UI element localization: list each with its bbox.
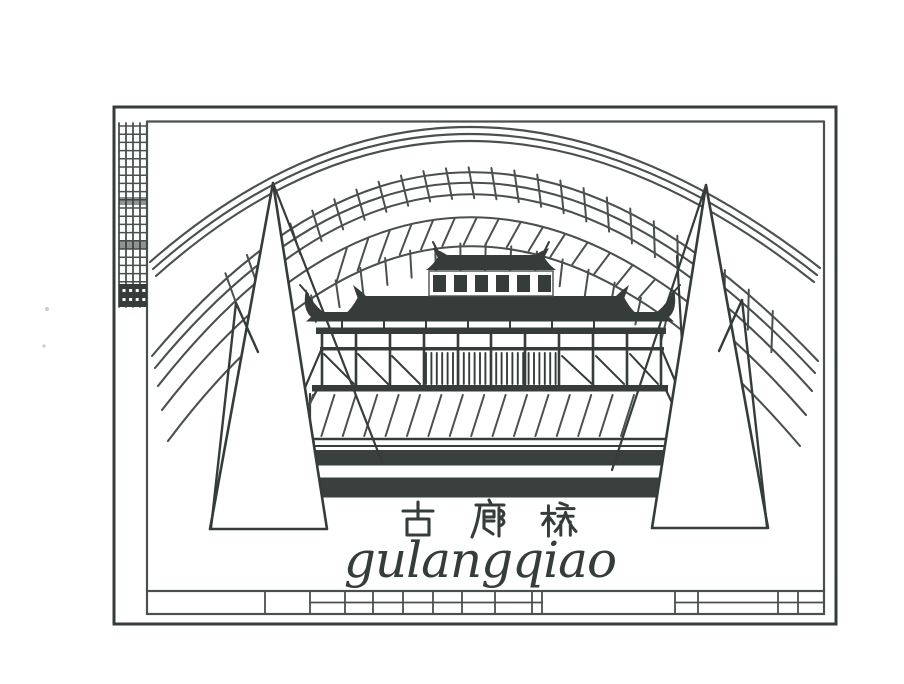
pinyin-title: gulangqiao (344, 531, 616, 589)
grid-dark-block (119, 284, 147, 307)
grid-dark-row (119, 197, 147, 205)
grid-dot (129, 298, 132, 301)
arc-tick (654, 221, 655, 257)
grid-dot (129, 289, 132, 292)
clerestory-band (429, 271, 553, 296)
arc-tick (771, 311, 772, 352)
grid-dark-row (119, 241, 147, 249)
bottom-scale-bar (147, 591, 824, 614)
scan-speck (45, 307, 49, 311)
clerestory-window (496, 275, 509, 292)
grid-dot (123, 289, 126, 292)
clerestory-window (517, 275, 530, 292)
floor-beam (312, 385, 668, 392)
clerestory-window (433, 275, 446, 292)
scan-speck (42, 344, 45, 347)
pavilion-roof (426, 257, 556, 270)
deck-band-lower (278, 478, 712, 498)
grid-dot (142, 298, 145, 301)
clerestory-window (475, 275, 488, 292)
arc-tick (748, 290, 749, 330)
clerestory-window (454, 275, 467, 292)
clerestory-window (538, 275, 551, 292)
bridge-logo-drawing: gulangqiao (0, 0, 904, 684)
grid-dot (123, 298, 126, 301)
grid-dot (136, 298, 139, 301)
grid-dot (136, 289, 139, 292)
grid-dot (142, 289, 145, 292)
deck-band-upper (278, 450, 712, 466)
scanned-trademark-page: 古廊桥 (0, 0, 904, 684)
